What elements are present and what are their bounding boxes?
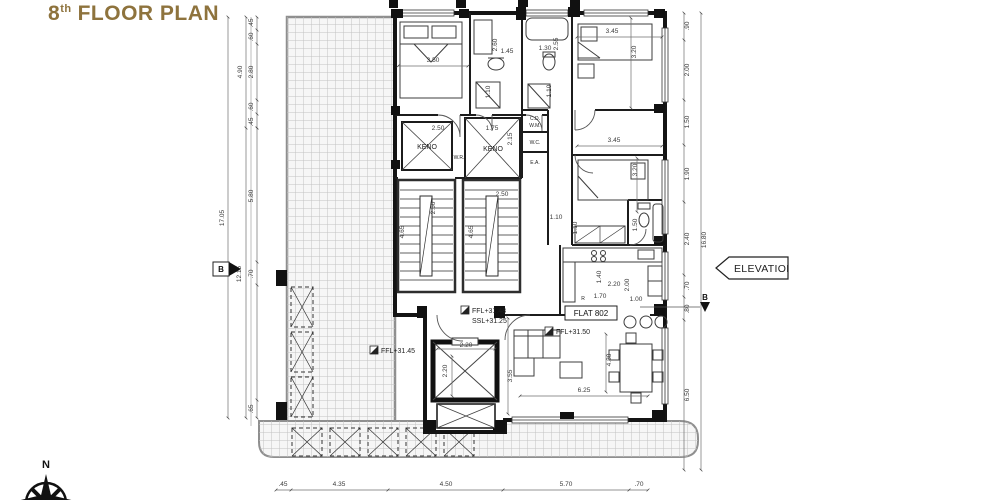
dim-right-7: 6.50 <box>684 388 691 401</box>
dim-stair1-width: 2.50 <box>430 201 437 214</box>
dim-right-6: .80 <box>684 304 691 313</box>
label-ssl-lobby: SSL+31.25 <box>472 318 507 325</box>
flat-tag: FLAT 802 <box>565 306 617 320</box>
label-wc: W.C. <box>530 140 541 146</box>
dim-kitchen-a: 1.40 <box>596 270 603 283</box>
dim-bath1-depth: 2.60 <box>492 38 499 51</box>
dim-shaft1-width: 2.50 <box>432 125 445 132</box>
dim-shaft2-width: 1.75 <box>486 125 499 132</box>
dim-hall-width: 1.10 <box>550 214 563 221</box>
label-shaft-left: KENO <box>417 144 437 151</box>
dim-bottom-4: .70 <box>634 481 643 488</box>
label-ffl-terrace: FFL+31.45 <box>381 348 415 355</box>
level-marker-lobby <box>461 306 469 314</box>
dim-stair2-depth: 4.65 <box>468 225 475 238</box>
dim-corridor-b: 1.10 <box>546 84 553 97</box>
dim-right-2: 1.50 <box>684 115 691 128</box>
dim-bed2-width: 3.45 <box>606 28 619 35</box>
dimension-labels-bottom: .45 4.35 4.50 5.70 .70 <box>278 481 643 488</box>
dim-corridor-a: 1.10 <box>485 85 492 98</box>
dim-bath2-width: 1.30 <box>539 45 552 52</box>
dim-right-0: .90 <box>684 21 691 30</box>
dimension-labels-right: .90 2.00 1.50 1.90 2.40 .70 .80 6.50 16.… <box>684 21 708 401</box>
dim-bed3-depth: 3.20 <box>632 163 639 176</box>
dim-left-7: 5.80 <box>248 189 255 202</box>
dim-left-8: .70 <box>248 269 255 278</box>
elevation-tag-label: ELEVATION <box>734 263 794 275</box>
level-marker-terrace <box>370 346 378 354</box>
label-cd: C.D. <box>530 116 540 122</box>
dim-left-10: .65 <box>248 404 255 413</box>
dim-living-b: 4.30 <box>606 353 613 366</box>
dim-left-1: .60 <box>248 32 255 41</box>
floor-plan-drawing: .45 .60 2.80 .60 .45 4.90 17.05 5.80 .70… <box>0 0 1000 500</box>
dim-stair2-width: 2.50 <box>496 191 509 198</box>
label-shaft-right: KENO <box>483 146 503 153</box>
elevator-shaft <box>433 338 497 428</box>
dim-left-0: .45 <box>248 18 255 27</box>
dim-hall-depth: 1.10 <box>572 221 579 234</box>
section-marker-left-label: B <box>218 265 224 274</box>
dim-left-3: .60 <box>248 102 255 111</box>
compass-north-label: N <box>42 459 50 471</box>
dim-elevator-width: 2.20 <box>460 342 473 349</box>
dim-right-3: 1.90 <box>684 167 691 180</box>
label-ffl-living: FFL+31.50 <box>556 329 590 336</box>
dim-bed2-depth: 3.20 <box>631 45 638 58</box>
dim-bath1-width: 1.45 <box>501 48 514 55</box>
label-flat-number: FLAT 802 <box>574 309 609 318</box>
dim-left-5: 4.90 <box>237 65 244 78</box>
dim-left-4: .45 <box>248 117 255 126</box>
dim-kitchen-c: 2.00 <box>624 278 631 291</box>
dim-bath2-depth: 2.55 <box>553 37 560 50</box>
dim-right-5: .70 <box>684 281 691 290</box>
dim-shaft2-depth: 2.15 <box>507 132 514 145</box>
dim-living-a: 3.55 <box>507 369 514 382</box>
compass-north: N <box>8 459 84 500</box>
dim-bottom-2: 4.50 <box>440 481 453 488</box>
label-wr: W.R. <box>454 155 465 161</box>
dim-right-8: 16.80 <box>701 231 708 248</box>
dim-left-6: 17.05 <box>219 209 226 226</box>
dim-stair1-depth: 4.65 <box>399 225 406 238</box>
dim-living-c: 6.25 <box>578 387 591 394</box>
dim-kitchen-e: 1.00 <box>630 296 643 303</box>
dim-bottom-3: 5.70 <box>560 481 573 488</box>
dim-wc-width: 1.50 <box>632 218 639 231</box>
label-ffl-lobby: FFL+31.48 <box>472 308 506 315</box>
level-marker-living <box>545 327 553 335</box>
label-ea: E.A. <box>530 160 539 166</box>
dim-kitchen-b: 2.20 <box>608 281 621 288</box>
label-kitchen-r: R <box>581 296 585 302</box>
label-wm: W.M. <box>529 123 540 129</box>
dimension-labels-left: .45 .60 2.80 .60 .45 4.90 17.05 5.80 .70… <box>219 18 255 413</box>
elevation-tag: ELEVATION <box>716 257 794 279</box>
dim-right-4: 2.40 <box>684 232 691 245</box>
dim-bed3-width: 3.45 <box>608 137 621 144</box>
dim-left-2: 2.80 <box>248 65 255 78</box>
dim-right-1: 2.00 <box>684 63 691 76</box>
section-marker-right-label: B <box>702 293 708 302</box>
dim-bottom-1: 4.35 <box>333 481 346 488</box>
dim-elevator-depth: 2.20 <box>442 364 449 377</box>
floor-plan-sheet: 8thFLOOR PLAN <box>0 0 1000 500</box>
dim-kitchen-d: 1.70 <box>594 293 607 300</box>
dim-bed1-width: 3.50 <box>427 57 440 64</box>
dim-bottom-0: .45 <box>278 481 287 488</box>
